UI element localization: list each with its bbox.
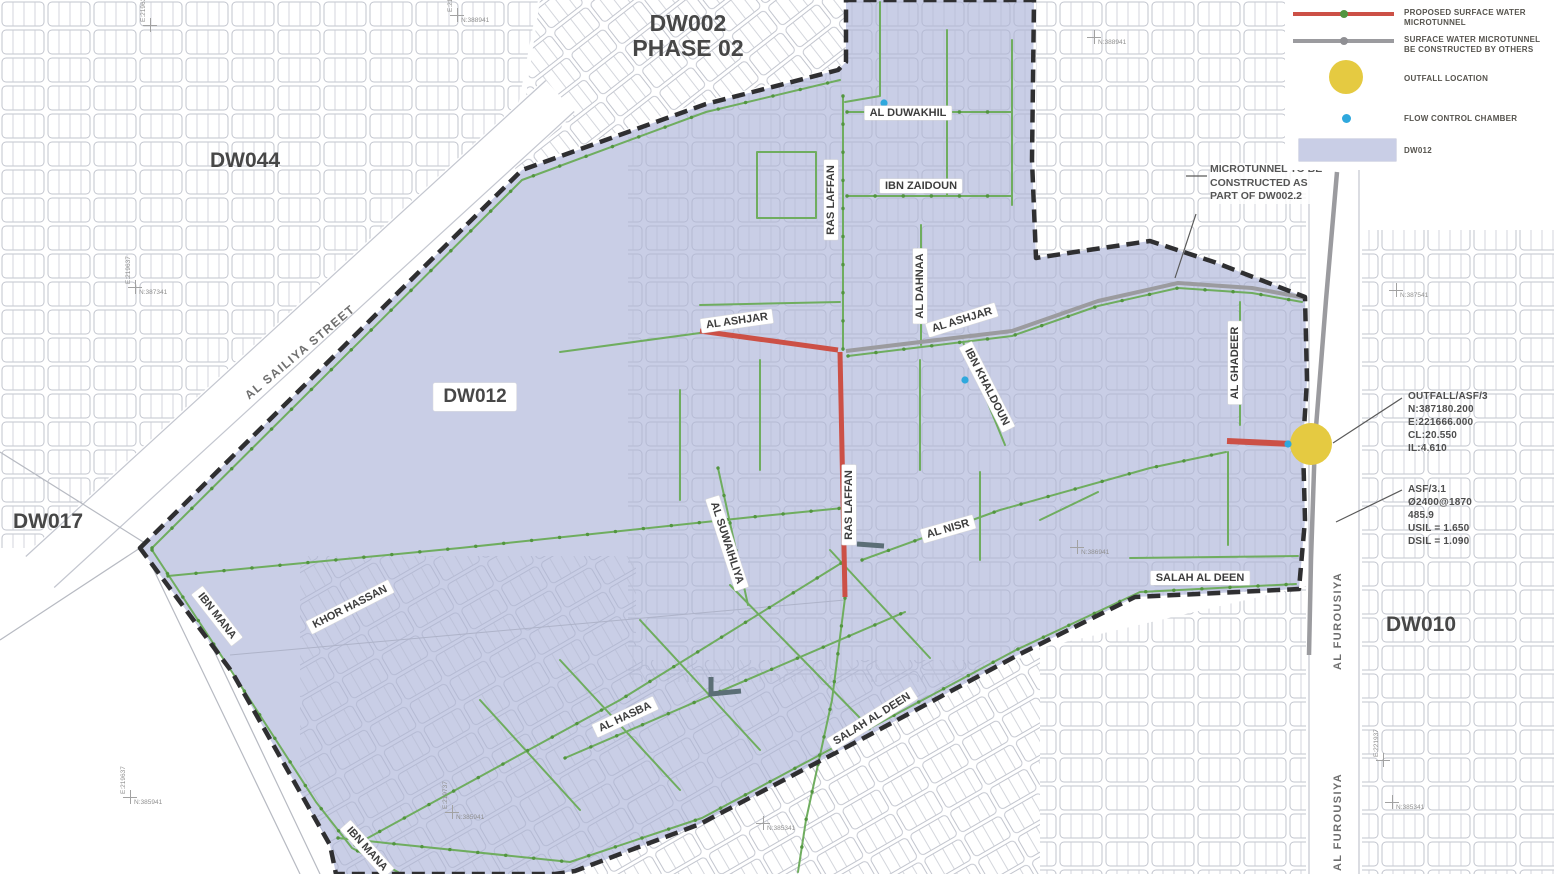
callout-line: N:387180.200 [1408, 403, 1488, 416]
callout-line: DSIL = 1.090 [1408, 535, 1472, 548]
street-label-ras-laffan-north: RAS LAFFAN [824, 160, 838, 240]
microtunnel-plan-map: DW044 DW002 PHASE 02 DW012 DW010 DW017 A… [0, 0, 1554, 874]
callout-outfall: OUTFALL/ASF/3 N:387180.200 E:221666.000 … [1408, 390, 1488, 455]
legend: PROPOSED SURFACE WATER MICROTUNNEL SURFA… [1285, 0, 1554, 170]
region-label-dw010: DW010 [1386, 613, 1456, 637]
street-label-al-furousiya-south: AL FUROUSIYA [1331, 768, 1345, 874]
legend-dw012-swatch [1299, 139, 1396, 161]
region-label-dw044: DW044 [210, 149, 280, 173]
legend-label: FLOW CONTROL CHAMBER [1404, 114, 1517, 124]
legend-microtunnel-by-others-line [1293, 39, 1394, 43]
legend-outfall-icon [1329, 60, 1363, 94]
annotation-line: PART OF DW002.2 [1210, 190, 1332, 204]
legend-label: MICROTUNNEL [1404, 18, 1466, 28]
legend-label: SURFACE WATER MICROTUNNEL [1404, 35, 1540, 45]
legend-label: BE CONSTRUCTED BY OTHERS [1404, 45, 1533, 55]
street-label-ras-laffan-south: RAS LAFFAN [842, 465, 856, 545]
callout-line: Ø2400@1870 [1408, 496, 1472, 509]
legend-label: DW012 [1404, 146, 1432, 156]
street-label-salah-al-deen-east: SALAH AL DEEN [1151, 571, 1250, 585]
callout-asf: ASF/3.1 Ø2400@1870 485.9 USIL = 1.650 DS… [1408, 483, 1472, 548]
street-label-al-furousiya-north: AL FUROUSIYA [1331, 567, 1345, 675]
legend-gray-dot [1340, 37, 1348, 45]
legend-flow-control-chamber-icon [1342, 114, 1351, 123]
callout-line: IL:4.610 [1408, 442, 1488, 455]
callout-line: CL:20.550 [1408, 429, 1488, 442]
callout-line: 485.9 [1408, 509, 1472, 522]
region-label-dw012: DW012 [433, 383, 516, 411]
dw002-line1: DW002 [632, 11, 743, 36]
callout-line: USIL = 1.650 [1408, 522, 1472, 535]
street-label-al-dahnaa: AL DAHNAA [913, 248, 927, 323]
legend-label: PROPOSED SURFACE WATER [1404, 8, 1526, 18]
legend-label: OUTFALL LOCATION [1404, 74, 1488, 84]
callout-line: ASF/3.1 [1408, 483, 1472, 496]
legend-manhole-dot [1340, 10, 1348, 18]
dw002-line2: PHASE 02 [632, 36, 743, 61]
street-label-al-duwakhil: AL DUWAKHIL [865, 106, 952, 120]
outfall-marker [1290, 423, 1332, 465]
street-label-al-ghadeer: AL GHADEER [1228, 322, 1242, 405]
street-label-ibn-zaidoun: IBN ZAIDOUN [880, 179, 962, 193]
region-label-dw017: DW017 [13, 510, 83, 534]
callout-line: E:221666.000 [1408, 416, 1488, 429]
legend-proposed-microtunnel-line [1293, 12, 1394, 16]
region-label-dw002: DW002 PHASE 02 [632, 11, 743, 61]
annotation-line: CONSTRUCTED AS [1210, 177, 1332, 191]
callout-line: OUTFALL/ASF/3 [1408, 390, 1488, 403]
